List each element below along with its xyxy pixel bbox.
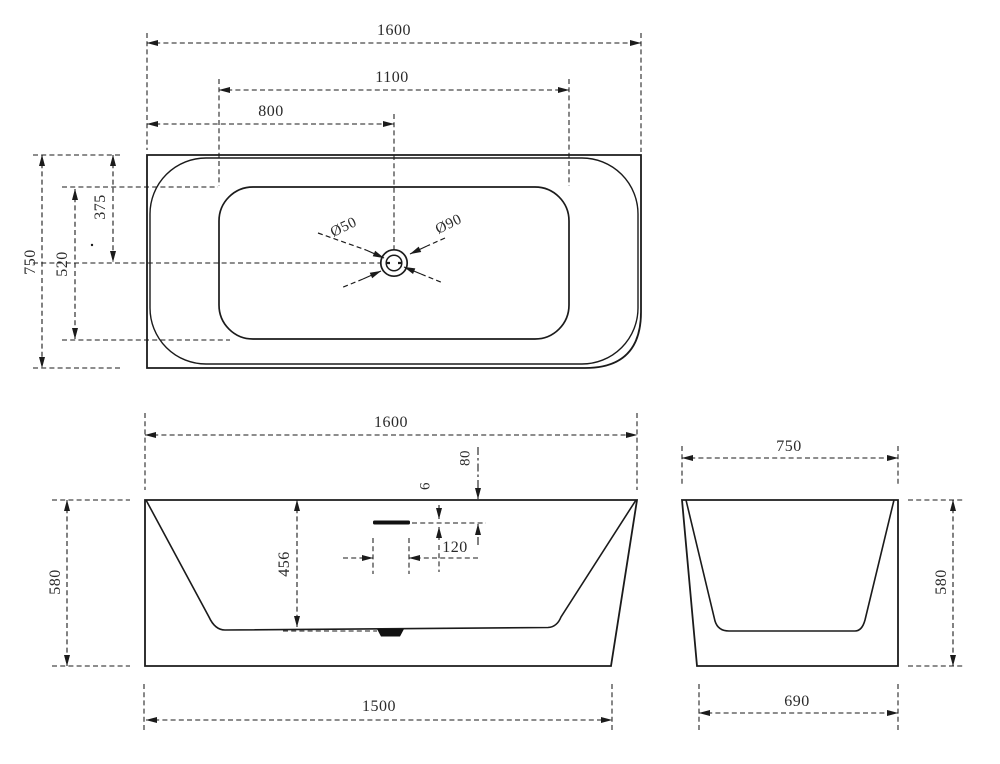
dim-front-height-580: 580 bbox=[48, 569, 64, 595]
front-basin-profile bbox=[146, 500, 636, 630]
dim-front-overflow-offset-80: 80 bbox=[459, 450, 474, 466]
front-drain-notch bbox=[377, 629, 404, 637]
dim-side-width-750: 750 bbox=[776, 439, 802, 455]
dim-top-drain-offset-375: 375 bbox=[93, 194, 109, 220]
dim-top-drain-offset-800: 800 bbox=[258, 104, 284, 120]
top-view bbox=[33, 33, 641, 368]
dim-top-length-1600: 1600 bbox=[377, 23, 411, 39]
dim-side-height-580: 580 bbox=[934, 569, 950, 595]
technical-drawing-page: 1600 1100 800 750 520 375 Ø50 Ø90 1600 8… bbox=[0, 0, 1000, 764]
dim-top-inner-width-520: 520 bbox=[55, 251, 71, 277]
front-tub-outline bbox=[145, 500, 637, 666]
dim-top-inner-length-1100: 1100 bbox=[375, 70, 408, 86]
dim-front-overflow-width-120: 120 bbox=[442, 540, 468, 556]
dim-front-base-1500: 1500 bbox=[362, 699, 396, 715]
dim-side-base-690: 690 bbox=[784, 694, 810, 710]
drawing-canvas bbox=[0, 0, 1000, 764]
dim-front-depth-456: 456 bbox=[277, 551, 293, 577]
dim-top-width-750: 750 bbox=[23, 249, 39, 275]
side-view bbox=[682, 446, 963, 731]
dim-front-overflow-height-6: 6 bbox=[419, 482, 434, 490]
drain-circle-outer bbox=[381, 250, 407, 276]
top-extension-lines bbox=[33, 33, 641, 368]
front-overflow-slot bbox=[373, 521, 410, 525]
stray-dot bbox=[91, 244, 93, 246]
side-basin-profile bbox=[686, 500, 894, 631]
front-extension-lines bbox=[52, 413, 637, 733]
side-tub-outline bbox=[682, 500, 898, 666]
side-extension-lines bbox=[682, 446, 963, 731]
front-view bbox=[52, 413, 637, 733]
dim-front-length-1600: 1600 bbox=[374, 415, 408, 431]
